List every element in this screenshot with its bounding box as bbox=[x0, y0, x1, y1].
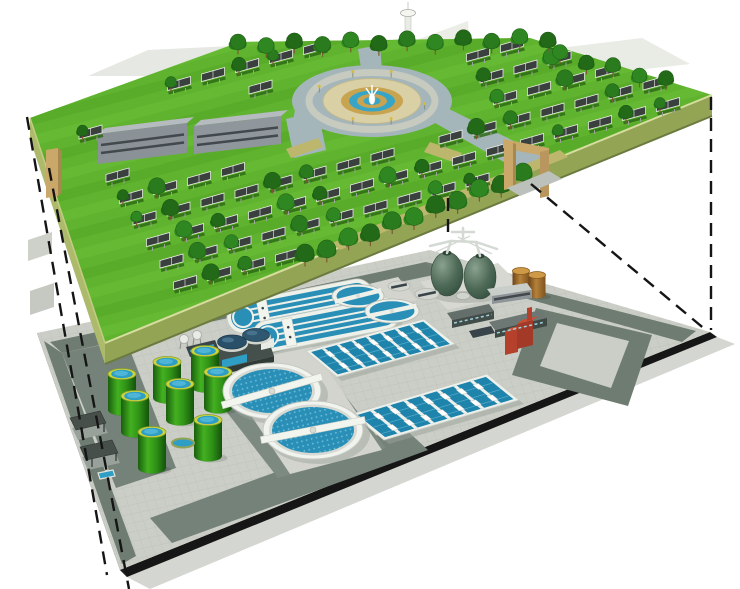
gate-post bbox=[504, 143, 513, 190]
concrete-block bbox=[28, 232, 52, 261]
navy-dome bbox=[243, 329, 270, 342]
gate-post-left-side bbox=[58, 148, 62, 196]
ground-pool bbox=[172, 439, 194, 448]
lamp-post bbox=[318, 85, 321, 88]
lamp-post bbox=[351, 70, 354, 73]
lamp-post bbox=[423, 102, 426, 105]
tank-small bbox=[415, 289, 439, 300]
hopper-tank bbox=[193, 331, 202, 340]
boiler-building bbox=[505, 329, 518, 355]
concrete-block bbox=[30, 283, 54, 315]
lamp-post bbox=[351, 117, 354, 120]
navy-dome bbox=[218, 335, 247, 349]
layered-facility-diagram bbox=[0, 0, 740, 589]
lamp-post bbox=[390, 117, 393, 120]
gate-post-left bbox=[46, 148, 58, 198]
hopper-tank bbox=[180, 335, 189, 344]
boiler-building bbox=[517, 320, 533, 349]
gate-post-side bbox=[513, 143, 516, 188]
chimney bbox=[527, 307, 532, 321]
lamp-post bbox=[390, 70, 393, 73]
digester-piping bbox=[430, 241, 451, 246]
facility-diagram-svg bbox=[0, 0, 740, 589]
digester-egg bbox=[431, 252, 463, 296]
small-dome bbox=[456, 293, 470, 300]
clarifier-medium bbox=[365, 299, 419, 323]
fountain-plaza bbox=[292, 65, 452, 137]
tank-small bbox=[388, 281, 410, 291]
